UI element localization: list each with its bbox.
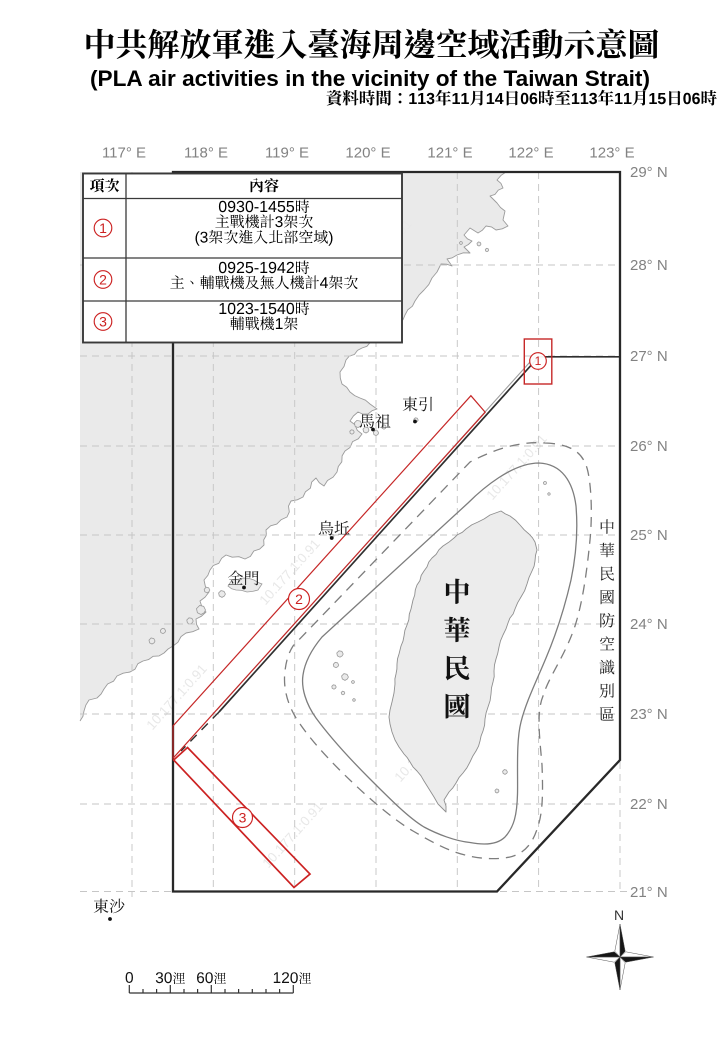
- svg-text:26° N: 26° N: [630, 438, 668, 455]
- svg-text:24° N: 24° N: [630, 616, 668, 633]
- svg-text:1: 1: [535, 354, 542, 368]
- svg-text:3: 3: [239, 809, 247, 825]
- svg-text:121° E: 121° E: [427, 145, 472, 162]
- svg-text:120° E: 120° E: [345, 145, 390, 162]
- svg-text:0: 0: [125, 970, 134, 987]
- svg-text:2: 2: [99, 271, 107, 287]
- svg-text:N: N: [614, 907, 624, 923]
- svg-text:117° E: 117° E: [102, 145, 146, 162]
- svg-text:118° E: 118° E: [184, 145, 228, 162]
- svg-text:123° E: 123° E: [589, 145, 634, 162]
- svg-text:3: 3: [99, 313, 107, 329]
- svg-text:1: 1: [99, 220, 107, 236]
- svg-text:29° N: 29° N: [630, 164, 668, 181]
- svg-text:(PLA air activities in the vic: (PLA air activities in the vicinity of t…: [90, 66, 650, 91]
- svg-text:27° N: 27° N: [630, 348, 668, 365]
- svg-text:22° N: 22° N: [630, 796, 668, 813]
- svg-text:2: 2: [295, 591, 303, 607]
- svg-text:25° N: 25° N: [630, 527, 668, 544]
- svg-text:23° N: 23° N: [630, 706, 668, 723]
- svg-text:119° E: 119° E: [265, 145, 309, 162]
- svg-text:122° E: 122° E: [508, 145, 553, 162]
- svg-text:21° N: 21° N: [630, 884, 668, 901]
- svg-text:28° N: 28° N: [630, 257, 668, 274]
